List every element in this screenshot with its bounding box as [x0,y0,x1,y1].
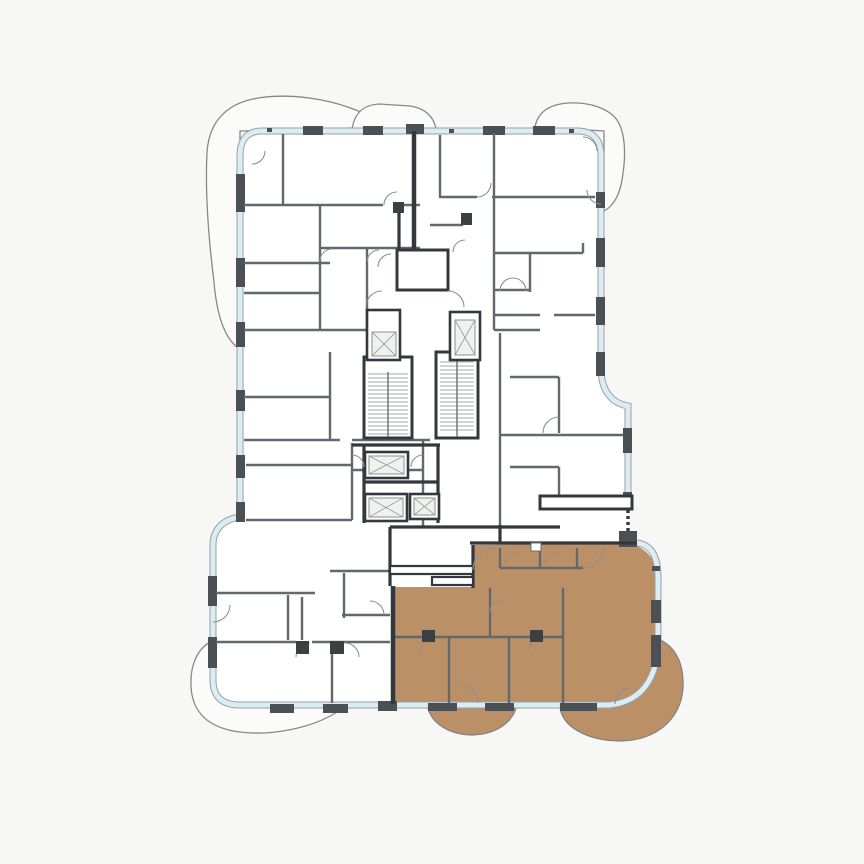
elevator-shaft [367,310,400,360]
mullion [428,703,457,711]
mullion [533,126,555,135]
floor-plan-page [0,0,864,864]
mullion [363,126,383,135]
mullion [596,192,605,208]
mullion [485,703,514,711]
elevator-shaft [450,312,480,360]
stair-shaft-west [364,357,412,438]
mullion [208,576,217,606]
mullion [236,258,245,287]
mullion [208,637,217,668]
mullion [651,635,661,667]
mullion [596,352,605,376]
elevator-shaft [365,494,407,521]
mullion [236,502,245,522]
cavity-wall [540,496,632,509]
mullion [236,455,245,478]
wall-niche [531,543,541,551]
stair-shaft-east [436,352,478,438]
floor-plan-canvas [0,0,864,864]
vestibule [397,250,448,290]
mullion [236,174,245,212]
mullion [236,390,245,411]
door-jamb [461,213,472,225]
elevator-shaft [365,452,408,478]
mullion [560,703,597,711]
closet-wall [432,577,473,585]
door-jamb [422,630,435,642]
elevator-shaft [410,494,439,519]
door-jamb [530,630,543,642]
door-jamb [296,641,309,654]
door-jamb [393,202,404,213]
mullion-tick [449,129,454,133]
mullion [651,600,661,623]
mullion [270,704,294,713]
closet-wall [390,566,473,574]
mullion [623,428,632,453]
mullion [596,297,605,325]
mullion-tick [652,566,660,571]
mullion [303,126,323,135]
mullion-tick [267,128,272,132]
door-jamb [330,641,344,654]
mullion-tick [569,129,574,133]
mullion [323,704,348,713]
mullion [596,238,605,267]
mullion [236,322,245,347]
